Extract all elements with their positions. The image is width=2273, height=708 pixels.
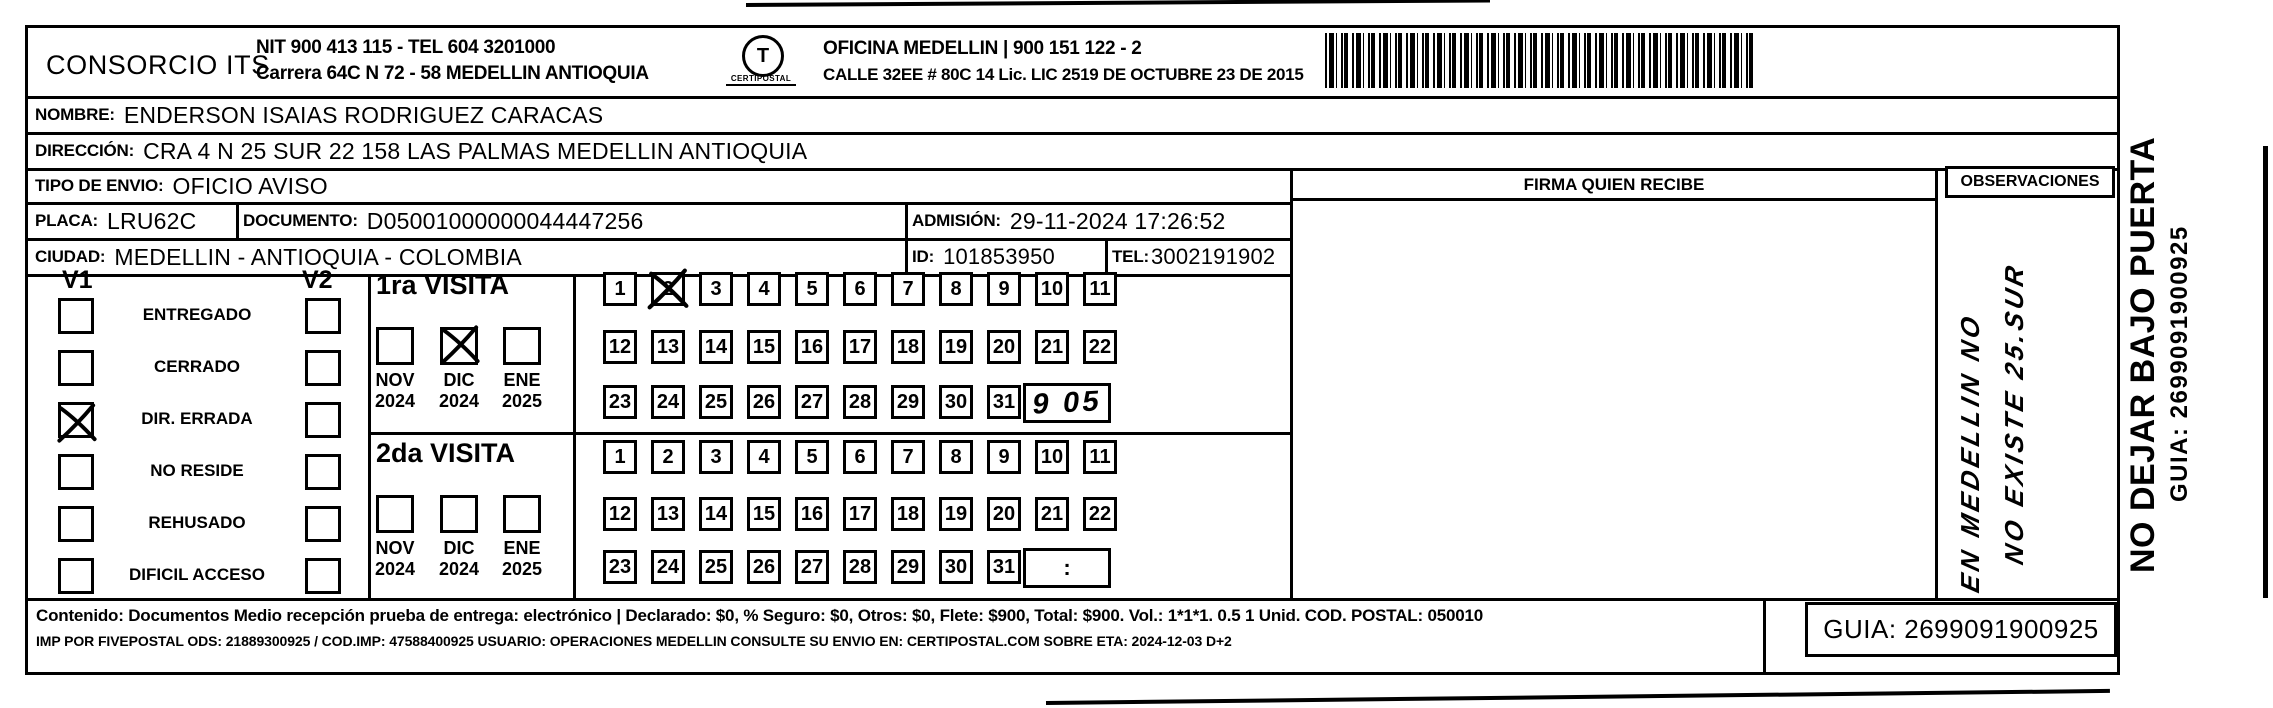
visit1-day-4: 4 — [747, 272, 781, 306]
tel-cell: TEL: 3002191902 — [1105, 240, 1290, 274]
visit1-month-checkbox-ene — [503, 327, 541, 365]
visit2-day-3: 3 — [699, 440, 733, 474]
checkbox-v1-dir-errada — [58, 402, 94, 438]
visit2-month-label-ene: ENE2025 — [493, 538, 551, 580]
status-label-no-reside: NO RESIDE — [94, 461, 300, 481]
company-address-line: Carrera 64C N 72 - 58 MEDELLIN ANTIOQUIA — [256, 61, 649, 87]
visit2-day-22: 22 — [1083, 497, 1117, 531]
handwritten-x-mark — [438, 322, 482, 368]
placa-value: LRU62C — [107, 208, 196, 235]
visit2-day-31: 31 — [987, 550, 1021, 584]
visit1-day-28: 28 — [843, 385, 877, 419]
status-label-entregado: ENTREGADO — [94, 305, 300, 325]
status-label-dificil-acceso: DIFICIL ACCESO — [94, 565, 300, 585]
visit1-day-15: 15 — [747, 330, 781, 364]
visit1-month-label-nov: NOV2024 — [366, 370, 424, 412]
tipo-envio-value: OFICIO AVISO — [173, 173, 328, 200]
checkbox-v2-no-reside — [305, 454, 341, 490]
scan-artifact-line-right-edge — [2263, 146, 2268, 598]
admision-cell: ADMISIÓN: 29-11-2024 17:26:52 — [905, 204, 1290, 238]
observaciones-handwriting-line1: EN MEDELLIN NO — [1955, 236, 1993, 597]
visit1-day-20: 20 — [987, 330, 1021, 364]
scan-artifact-line-bottom — [1046, 689, 2110, 705]
visit1-day-27: 27 — [795, 385, 829, 419]
visit2-day-6: 6 — [843, 440, 877, 474]
visit1-month-checkbox-nov — [376, 327, 414, 365]
visit2-day-8: 8 — [939, 440, 973, 474]
first-visit-title: 1ra VISITA — [376, 270, 509, 301]
visit2-day-21: 21 — [1035, 497, 1069, 531]
firma-quien-recibe-area — [1293, 201, 1935, 598]
footer-imp-line: IMP POR FIVEPOSTAL ODS: 21889300925 / CO… — [36, 633, 1232, 649]
footer-contents-line: Contenido: Documentos Medio recepción pr… — [36, 606, 1483, 626]
visit1-day-22: 22 — [1083, 330, 1117, 364]
observaciones-header: OBSERVACIONES — [1945, 166, 2115, 198]
certipostal-logo-caption: CERTIPOSTAL — [726, 74, 796, 86]
divider — [368, 432, 1290, 435]
visit1-day-23: 23 — [603, 385, 637, 419]
certipostal-logo-icon: T — [742, 35, 784, 77]
visit1-day-31: 31 — [987, 385, 1021, 419]
placa-cell: PLACA: LRU62C — [28, 204, 236, 238]
admision-value: 29-11-2024 17:26:52 — [1010, 208, 1226, 235]
v1-column-header: V1 — [62, 266, 93, 295]
checkbox-v2-dir-errada — [305, 402, 341, 438]
visit2-day-26: 26 — [747, 550, 781, 584]
divider — [28, 598, 2117, 601]
checkbox-v2-entregado — [305, 298, 341, 334]
logo-glyph: T — [757, 45, 769, 68]
visit2-day-4: 4 — [747, 440, 781, 474]
visit2-day-17: 17 — [843, 497, 877, 531]
visit2-day-18: 18 — [891, 497, 925, 531]
visit2-day-19: 19 — [939, 497, 973, 531]
visit1-day-26: 26 — [747, 385, 781, 419]
visit1-day-13: 13 — [651, 330, 685, 364]
visit2-day-25: 25 — [699, 550, 733, 584]
visit2-day-16: 16 — [795, 497, 829, 531]
checkbox-v1-dificil-acceso — [58, 558, 94, 594]
side-warning-text: NO DEJAR BAJO PUERTA — [2124, 133, 2164, 573]
visit2-day-23: 23 — [603, 550, 637, 584]
visit1-day-16: 16 — [795, 330, 829, 364]
barcode — [1325, 33, 1755, 88]
visit2-month-checkbox-nov — [376, 495, 414, 533]
scanned-delivery-form-page: CONSORCIO ITS NIT 900 413 115 - TEL 604 … — [0, 0, 2273, 708]
office-line: OFICINA MEDELLIN | 900 151 122 - 2 — [823, 36, 1303, 62]
visit1-day-17: 17 — [843, 330, 877, 364]
checkbox-v2-cerrado — [305, 350, 341, 386]
office-address-line: CALLE 32EE # 80C 14 Lic. LIC 2519 DE OCT… — [823, 62, 1303, 88]
office-block: OFICINA MEDELLIN | 900 151 122 - 2 CALLE… — [823, 36, 1303, 88]
visit2-day-28: 28 — [843, 550, 877, 584]
visit2-day-14: 14 — [699, 497, 733, 531]
guia-number-box: GUIA: 2699091900925 — [1805, 602, 2117, 657]
divider — [1763, 598, 1766, 672]
visit1-day-7: 7 — [891, 272, 925, 306]
visit2-day-27: 27 — [795, 550, 829, 584]
documento-label: DOCUMENTO: — [243, 211, 358, 231]
checkbox-v1-cerrado — [58, 350, 94, 386]
direccion-row: DIRECCIÓN: CRA 4 N 25 SUR 22 158 LAS PAL… — [28, 134, 2117, 168]
checkbox-v1-entregado — [58, 298, 94, 334]
nombre-value: ENDERSON ISAIAS RODRIGUEZ CARACAS — [124, 102, 603, 129]
firma-quien-recibe-header: FIRMA QUIEN RECIBE — [1290, 168, 1938, 201]
visit1-day-19: 19 — [939, 330, 973, 364]
visit1-day-18: 18 — [891, 330, 925, 364]
visit1-day-3: 3 — [699, 272, 733, 306]
handwritten-x-mark — [645, 262, 691, 316]
visit2-day-2: 2 — [651, 440, 685, 474]
visit2-day-24: 24 — [651, 550, 685, 584]
placa-label: PLACA: — [35, 211, 98, 231]
visit2-day-12: 12 — [603, 497, 637, 531]
side-guia-text: GUIA: 2699091900925 — [2166, 184, 2196, 502]
divider — [1935, 168, 1938, 598]
visit2-time-box: : — [1023, 548, 1111, 588]
visit2-day-29: 29 — [891, 550, 925, 584]
visit2-time-value: : — [1063, 555, 1070, 581]
status-label-rehusado: REHUSADO — [94, 513, 300, 533]
visit1-day-29: 29 — [891, 385, 925, 419]
visit1-day-25: 25 — [699, 385, 733, 419]
tipo-envio-row: TIPO DE ENVIO: OFICIO AVISO — [28, 170, 1290, 202]
second-visit-title: 2da VISITA — [376, 438, 515, 469]
visit2-month-label-nov: NOV2024 — [366, 538, 424, 580]
company-name: CONSORCIO ITS — [46, 50, 270, 81]
visit1-day-11: 11 — [1083, 272, 1117, 306]
visit1-day-8: 8 — [939, 272, 973, 306]
id-label: ID: — [912, 247, 934, 267]
nombre-row: NOMBRE: ENDERSON ISAIAS RODRIGUEZ CARACA… — [28, 98, 2117, 132]
checkbox-v1-no-reside — [58, 454, 94, 490]
visit1-month-checkbox-dic — [440, 327, 478, 365]
visit1-day-1: 1 — [603, 272, 637, 306]
checkbox-v1-rehusado — [58, 506, 94, 542]
direccion-value: CRA 4 N 25 SUR 22 158 LAS PALMAS MEDELLI… — [143, 138, 807, 165]
visit2-day-10: 10 — [1035, 440, 1069, 474]
visit1-day-5: 5 — [795, 272, 829, 306]
ciudad-label: CIUDAD: — [35, 247, 105, 267]
visit1-day-24: 24 — [651, 385, 685, 419]
visit1-day-2: 2 — [651, 272, 685, 306]
visit1-day-14: 14 — [699, 330, 733, 364]
company-contact-block: NIT 900 413 115 - TEL 604 3201000 Carrer… — [256, 35, 649, 87]
visit2-day-20: 20 — [987, 497, 1021, 531]
checkbox-v2-rehusado — [305, 506, 341, 542]
scan-artifact-line-top — [746, 0, 1490, 7]
visit2-day-11: 11 — [1083, 440, 1117, 474]
tel-label: TEL: — [1112, 247, 1149, 267]
visit2-month-checkbox-ene — [503, 495, 541, 533]
visit1-month-label-dic: DIC2024 — [430, 370, 488, 412]
nombre-label: NOMBRE: — [35, 105, 115, 125]
id-value: 101853950 — [943, 244, 1055, 270]
visit2-month-checkbox-dic — [440, 495, 478, 533]
visit1-day-10: 10 — [1035, 272, 1069, 306]
direccion-label: DIRECCIÓN: — [35, 141, 134, 161]
visit1-time-box: 9 05 — [1023, 383, 1111, 423]
documento-cell: DOCUMENTO: D05001000000044447256 — [236, 204, 905, 238]
status-label-cerrado: CERRADO — [94, 357, 300, 377]
visit2-day-5: 5 — [795, 440, 829, 474]
company-nit-line: NIT 900 413 115 - TEL 604 3201000 — [256, 35, 649, 61]
ciudad-cell: CIUDAD: MEDELLIN - ANTIOQUIA - COLOMBIA — [28, 240, 905, 274]
visit1-time-value: 9 05 — [1030, 385, 1103, 422]
tel-value: 3002191902 — [1151, 244, 1275, 270]
admision-label: ADMISIÓN: — [912, 211, 1001, 231]
visit1-day-21: 21 — [1035, 330, 1069, 364]
visit2-day-7: 7 — [891, 440, 925, 474]
visit2-day-9: 9 — [987, 440, 1021, 474]
status-label-dir-errada: DIR. ERRADA — [94, 409, 300, 429]
visit1-day-6: 6 — [843, 272, 877, 306]
divider — [573, 274, 576, 598]
visit1-month-label-ene: ENE2025 — [493, 370, 551, 412]
tipo-envio-label: TIPO DE ENVIO: — [35, 176, 164, 196]
visit1-day-30: 30 — [939, 385, 973, 419]
visit1-day-9: 9 — [987, 272, 1021, 306]
visit2-day-13: 13 — [651, 497, 685, 531]
v2-column-header: V2 — [302, 266, 333, 295]
visit1-day-12: 12 — [603, 330, 637, 364]
delivery-form: CONSORCIO ITS NIT 900 413 115 - TEL 604 … — [25, 25, 2120, 675]
visit2-day-15: 15 — [747, 497, 781, 531]
checkbox-v2-dificil-acceso — [305, 558, 341, 594]
visit2-day-30: 30 — [939, 550, 973, 584]
visit2-month-label-dic: DIC2024 — [430, 538, 488, 580]
visit2-day-1: 1 — [603, 440, 637, 474]
observaciones-handwriting-line2: NO EXISTE 25.SUR — [1999, 220, 2039, 570]
documento-value: D05001000000044447256 — [367, 208, 644, 235]
id-cell: ID: 101853950 — [905, 240, 1105, 274]
